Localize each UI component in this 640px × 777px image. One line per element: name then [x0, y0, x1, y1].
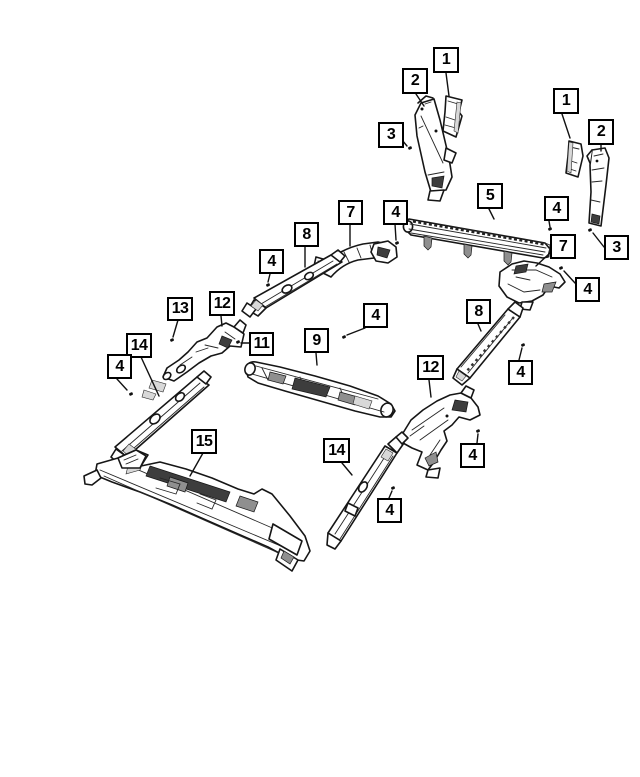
callout-number: 4	[552, 201, 560, 217]
callout-number: 2	[597, 124, 605, 140]
callout-box-11: 11	[249, 332, 274, 356]
fastener-dot	[266, 283, 271, 287]
callout-box-7: 7	[550, 234, 576, 259]
fastener-dot	[408, 146, 413, 150]
callout-number: 7	[346, 205, 354, 221]
callout-box-13: 13	[167, 297, 193, 321]
callout-leader-line	[395, 224, 396, 240]
callout-number: 3	[612, 240, 620, 256]
callout-number: 12	[214, 296, 231, 312]
callout-box-7: 7	[338, 200, 363, 225]
callout-number: 4	[468, 448, 476, 464]
callout-number: 4	[583, 282, 591, 298]
callout-box-8: 8	[466, 299, 491, 324]
callout-box-1: 1	[433, 47, 459, 73]
callout-leader-line	[347, 328, 365, 335]
callout-number: 1	[442, 52, 450, 68]
callout-box-4: 4	[363, 303, 388, 328]
callout-leader-line	[519, 348, 522, 360]
parts-diagram-canvas: 12312547348412414474849411131214415	[0, 0, 640, 777]
fastener-dot	[559, 266, 564, 270]
callout-number: 1	[562, 93, 570, 109]
callout-leader-line	[316, 353, 317, 365]
callout-box-12: 12	[417, 355, 444, 380]
part-sill-rail-illustration	[403, 219, 550, 265]
callout-number: 4	[516, 365, 524, 381]
callout-number: 2	[411, 73, 419, 89]
fastener-dot	[395, 241, 400, 245]
callout-box-4: 4	[377, 498, 402, 523]
callout-number: 4	[115, 359, 123, 375]
callout-leader-line	[549, 221, 550, 227]
callout-leader-line	[478, 324, 481, 331]
fastener-dot	[170, 338, 175, 342]
part-windshield-frame-illustration	[84, 450, 310, 571]
callout-box-2: 2	[588, 119, 614, 145]
callout-box-1: 1	[553, 88, 579, 114]
callout-number: 7	[559, 239, 567, 255]
callout-number: 11	[254, 336, 270, 352]
callout-leader-line	[342, 463, 352, 475]
callout-number: 4	[267, 254, 275, 270]
diagram-artwork	[0, 0, 640, 777]
callout-box-5: 5	[477, 183, 503, 209]
callout-box-8: 8	[294, 222, 319, 247]
callout-box-4: 4	[107, 354, 132, 379]
callout-number: 4	[385, 503, 393, 519]
callout-number: 8	[474, 304, 482, 320]
callout-number: 14	[131, 338, 148, 354]
callout-box-3: 3	[604, 235, 629, 260]
callout-leader-line	[117, 379, 127, 390]
callout-number: 5	[486, 188, 494, 204]
callout-box-3: 3	[378, 122, 404, 148]
callout-leader-line	[429, 380, 431, 397]
callout-leader-line	[593, 233, 604, 247]
part-clip-bracket-upper-right-illustration	[566, 141, 583, 177]
callout-leader-line	[221, 316, 222, 326]
callout-number: 4	[391, 205, 399, 221]
part-a-pillar-bracket-right-illustration	[499, 261, 565, 310]
callout-leader-line	[389, 491, 392, 498]
part-header-crossmember-illustration	[243, 362, 395, 419]
callout-leader-line	[489, 209, 494, 219]
callout-box-4: 4	[575, 277, 600, 302]
callout-box-9: 9	[304, 328, 329, 353]
callout-box-4: 4	[544, 196, 569, 221]
callout-number: 12	[422, 360, 439, 376]
callout-number: 8	[302, 227, 310, 243]
fastener-dot	[548, 227, 553, 231]
callout-box-4: 4	[383, 200, 408, 225]
part-b-pillar-upper-right-illustration	[587, 148, 609, 226]
fastener-dot	[391, 486, 396, 490]
fastener-dot	[521, 343, 526, 347]
fastener-dot	[129, 392, 134, 396]
fastener-dot	[476, 429, 481, 433]
callout-box-14: 14	[323, 438, 350, 463]
callout-leader-line	[564, 271, 575, 283]
part-roof-rail-left-illustration	[242, 250, 345, 317]
callout-leader-line	[446, 73, 449, 96]
callout-leader-line	[268, 274, 270, 282]
fastener-dot	[342, 335, 347, 339]
callout-box-2: 2	[402, 68, 428, 94]
fastener-dot	[588, 228, 593, 232]
callout-leader-line	[562, 114, 570, 138]
callout-number: 14	[328, 443, 345, 459]
callout-number: 3	[387, 127, 395, 143]
callout-box-4: 4	[508, 360, 533, 385]
callout-box-4: 4	[460, 443, 485, 468]
callout-number: 9	[312, 333, 320, 349]
callout-leader-line	[173, 320, 178, 337]
callout-box-4: 4	[259, 249, 284, 274]
callout-number: 13	[172, 301, 189, 317]
callout-box-12: 12	[209, 291, 235, 316]
callout-number: 15	[196, 434, 213, 450]
callout-number: 4	[371, 308, 379, 324]
callout-box-15: 15	[191, 429, 217, 454]
callout-leader-line	[477, 434, 478, 443]
part-clip-bracket-upper-left-illustration	[443, 96, 462, 137]
